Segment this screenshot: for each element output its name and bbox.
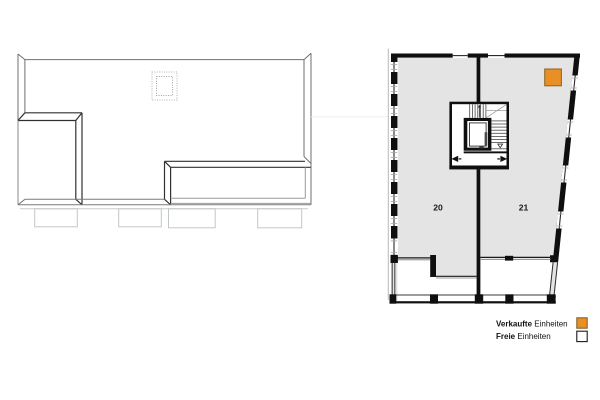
- svg-text:21: 21: [519, 203, 529, 213]
- svg-text:Freie Einheiten: Freie Einheiten: [496, 332, 551, 341]
- svg-text:20: 20: [433, 203, 443, 213]
- svg-text:Verkaufte Einheiten: Verkaufte Einheiten: [496, 319, 568, 328]
